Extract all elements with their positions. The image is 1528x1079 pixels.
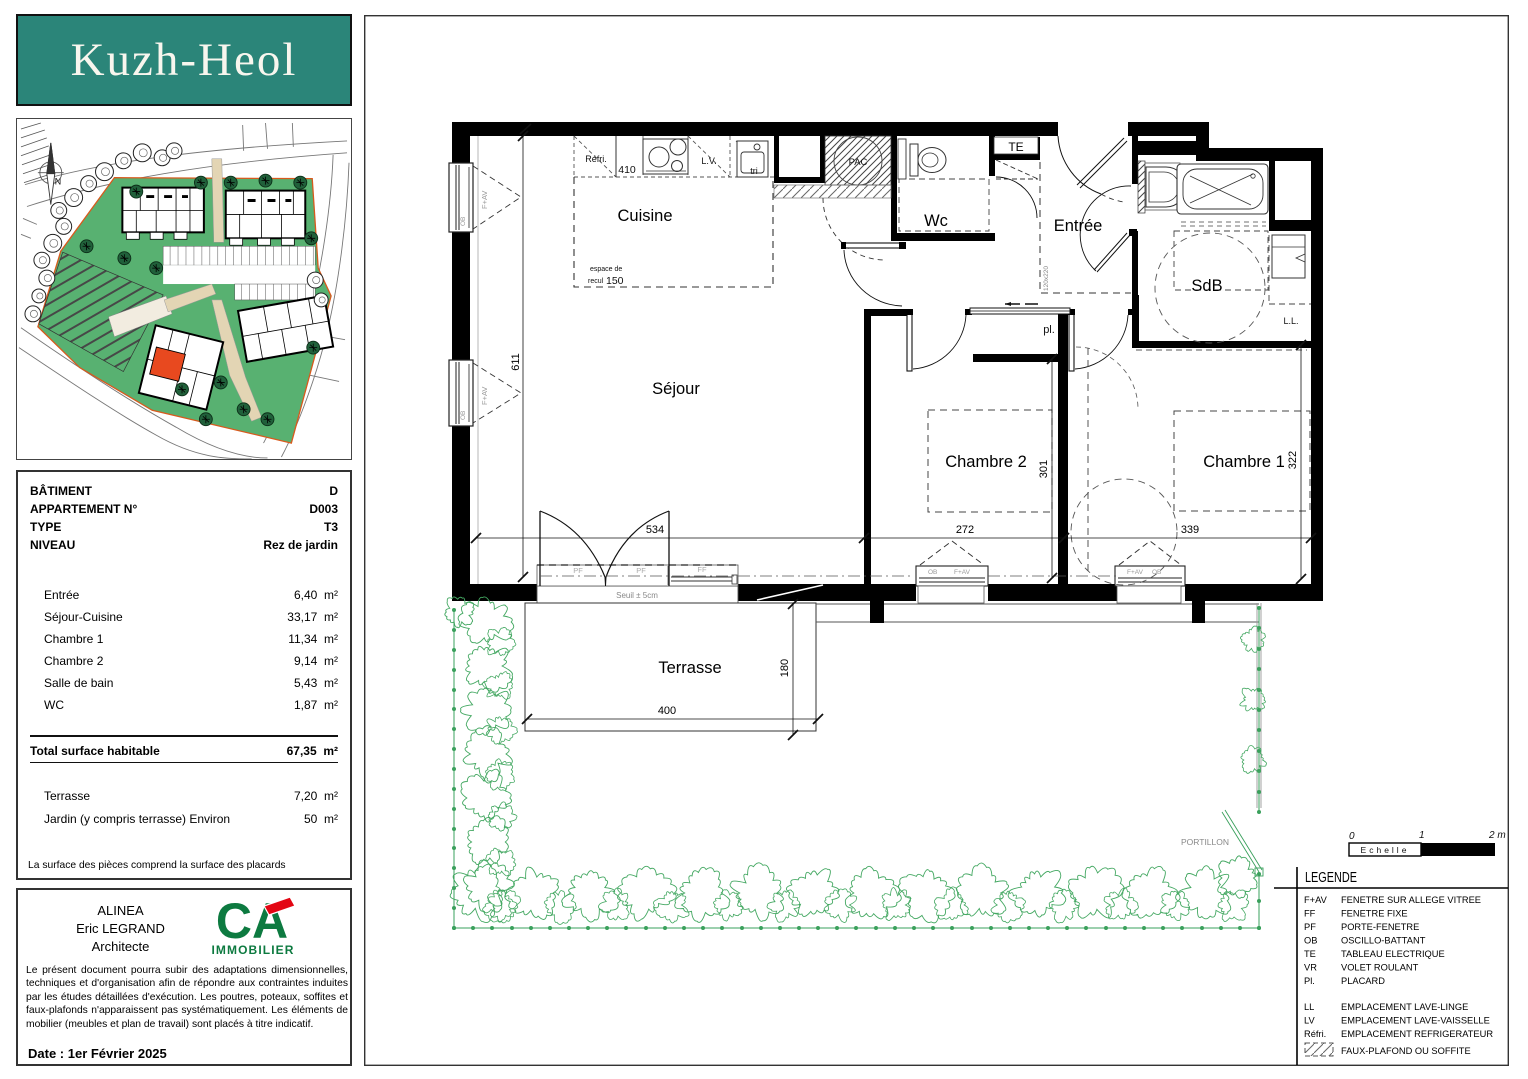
svg-text:301: 301 [1038, 460, 1050, 478]
svg-text:TE: TE [1304, 949, 1316, 959]
svg-text:Réfri.: Réfri. [1304, 1029, 1326, 1039]
svg-text:F+AV: F+AV [480, 387, 489, 405]
svg-text:LV: LV [1304, 1016, 1315, 1026]
svg-text:120x220: 120x220 [1043, 266, 1050, 291]
svg-text:L.L.: L.L. [1283, 316, 1298, 326]
svg-text:Terrasse: Terrasse [658, 659, 721, 677]
svg-text:OB: OB [460, 217, 467, 226]
svg-text:PAC: PAC [849, 157, 868, 168]
svg-text:611: 611 [510, 353, 522, 371]
svg-text:Echelle: Echelle [1361, 845, 1410, 855]
svg-text:OB: OB [1152, 569, 1161, 576]
svg-text:PORTE-FENETRE: PORTE-FENETRE [1341, 922, 1419, 932]
svg-text:F+AV: F+AV [480, 191, 489, 209]
svg-text:272: 272 [956, 524, 974, 536]
svg-text:FF: FF [1304, 909, 1316, 919]
svg-text:FAUX-PLAFOND OU SOFFITE: FAUX-PLAFOND OU SOFFITE [1341, 1046, 1471, 1056]
svg-text:LL: LL [1304, 1002, 1314, 1012]
svg-text:tri: tri [750, 166, 758, 176]
svg-text:Wc: Wc [924, 212, 948, 230]
svg-text:Séjour: Séjour [652, 380, 700, 398]
svg-text:534: 534 [646, 524, 664, 536]
svg-text:Entrée: Entrée [1054, 217, 1103, 235]
svg-text:OB: OB [1304, 936, 1317, 946]
svg-text:VOLET ROULANT: VOLET ROULANT [1341, 963, 1419, 973]
svg-text:SdB: SdB [1191, 277, 1222, 295]
svg-text:F+AV: F+AV [954, 569, 971, 576]
svg-text:F+AV: F+AV [1127, 569, 1144, 576]
svg-text:VR: VR [1304, 963, 1317, 973]
svg-text:150: 150 [606, 275, 624, 287]
svg-text:339: 339 [1181, 524, 1199, 536]
svg-text:OB: OB [460, 411, 467, 420]
svg-text:1: 1 [1419, 830, 1425, 841]
svg-text:EMPLACEMENT LAVE-VAISSELLE: EMPLACEMENT LAVE-VAISSELLE [1341, 1016, 1490, 1026]
svg-text:recul: recul [588, 278, 604, 285]
svg-text:L.V.: L.V. [701, 156, 716, 166]
svg-text:pl.: pl. [1043, 324, 1055, 336]
svg-text:EMPLACEMENT REFRIGERATEUR: EMPLACEMENT REFRIGERATEUR [1341, 1029, 1493, 1039]
svg-text:F+AV: F+AV [1304, 895, 1328, 905]
svg-text:Réfri.: Réfri. [585, 154, 607, 164]
svg-text:Chambre 1: Chambre 1 [1203, 453, 1285, 471]
svg-text:400: 400 [658, 705, 676, 717]
svg-text:N: N [55, 177, 61, 187]
svg-text:0: 0 [1349, 831, 1355, 842]
svg-text:LEGENDE: LEGENDE [1305, 869, 1357, 886]
svg-text:322: 322 [1287, 451, 1299, 469]
svg-text:IMMOBILIER: IMMOBILIER [212, 943, 295, 957]
svg-text:PLACARD: PLACARD [1341, 976, 1385, 986]
svg-text:OB: OB [928, 569, 937, 576]
svg-text:OSCILLO-BATTANT: OSCILLO-BATTANT [1341, 936, 1426, 946]
svg-text:FENETRE FIXE: FENETRE FIXE [1341, 909, 1408, 919]
svg-text:TE: TE [1008, 140, 1023, 154]
svg-text:Chambre 2: Chambre 2 [945, 453, 1027, 471]
svg-text:PF: PF [636, 566, 646, 575]
svg-text:espace de: espace de [590, 266, 622, 273]
svg-text:180: 180 [779, 659, 791, 677]
svg-text:410: 410 [618, 164, 636, 176]
svg-text:PORTILLON: PORTILLON [1181, 837, 1229, 847]
svg-text:PF: PF [1304, 922, 1316, 932]
svg-text:FENETRE SUR ALLEGE VITREE: FENETRE SUR ALLEGE VITREE [1341, 895, 1481, 905]
svg-text:Seuil ± 5cm: Seuil ± 5cm [616, 591, 658, 600]
svg-text:EMPLACEMENT LAVE-LINGE: EMPLACEMENT LAVE-LINGE [1341, 1002, 1468, 1012]
svg-text:Cuisine: Cuisine [617, 207, 672, 225]
svg-text:2 m: 2 m [1488, 830, 1506, 841]
svg-text:Pl.: Pl. [1304, 976, 1315, 986]
svg-text:PF: PF [573, 566, 583, 575]
svg-text:TABLEAU ELECTRIQUE: TABLEAU ELECTRIQUE [1341, 949, 1445, 959]
svg-text:FF: FF [697, 565, 707, 574]
